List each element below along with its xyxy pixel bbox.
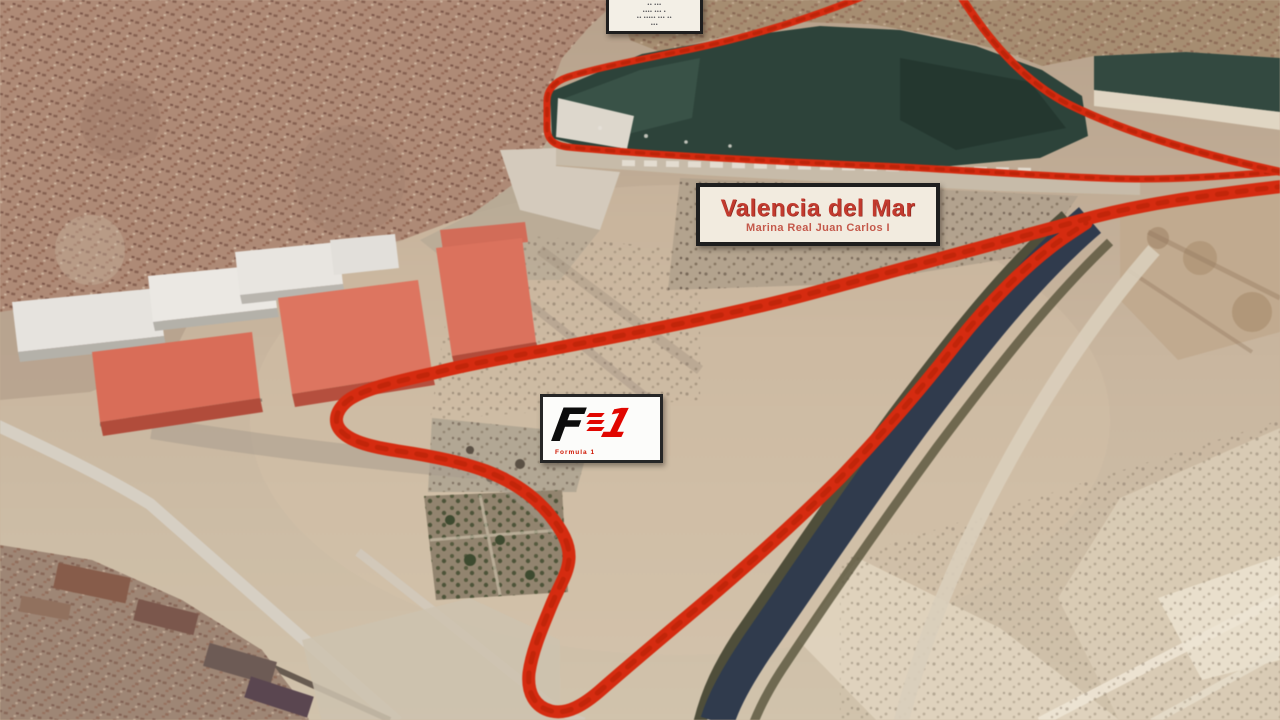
f1-digit-one: 1 — [597, 403, 637, 445]
f1-badge-box: F 1 Formula 1 — [540, 394, 663, 463]
f1-logo: F 1 — [553, 403, 631, 447]
f1-caption: Formula 1 — [555, 449, 595, 456]
white-building — [330, 234, 399, 275]
location-title: Valencia del Mar — [721, 196, 916, 221]
top-label-box: •• ••• •••• ••• • •• ••••• ••• •• ••• — [606, 0, 703, 34]
location-label-box: Valencia del Mar Marina Real Juan Carlos… — [696, 183, 940, 246]
red-building — [436, 238, 536, 356]
location-subtitle: Marina Real Juan Carlos I — [746, 222, 890, 234]
aerial-photo-valencia-circuit: •• ••• •••• ••• • •• ••••• ••• •• ••• Va… — [0, 0, 1280, 720]
f1-letter-f: F — [549, 403, 588, 447]
top-label-line: ••• — [651, 22, 658, 29]
aerial-map-image — [0, 0, 1280, 720]
